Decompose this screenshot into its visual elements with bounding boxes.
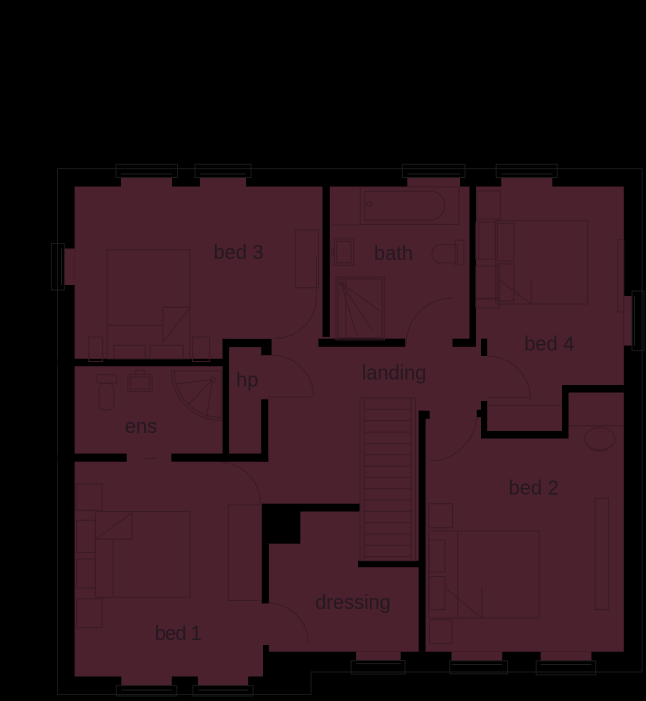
svg-text:landing: landing	[362, 363, 427, 385]
svg-text:hp: hp	[236, 370, 258, 392]
svg-text:bed 2: bed 2	[509, 478, 559, 500]
svg-text:bed 3: bed 3	[213, 242, 263, 264]
svg-text:bath: bath	[374, 243, 413, 265]
svg-text:ens: ens	[125, 416, 157, 438]
svg-text:bed 1: bed 1	[155, 623, 202, 645]
svg-text:bed 4: bed 4	[524, 334, 574, 356]
svg-text:dressing: dressing	[315, 592, 391, 614]
